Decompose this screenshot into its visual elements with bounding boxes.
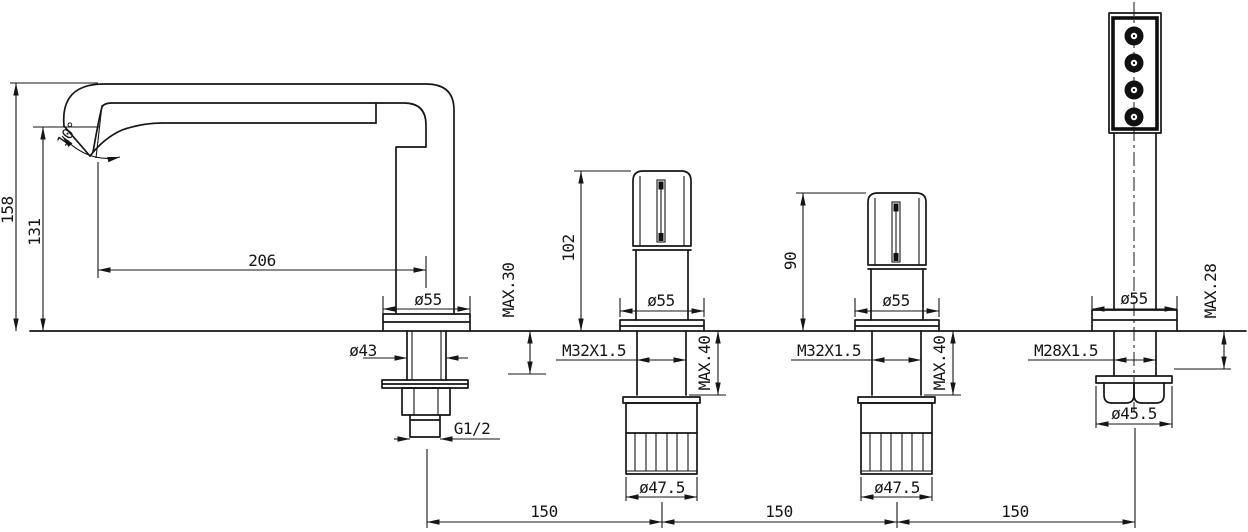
spout-dimensions: 158 131 10° 206 ø55 ø43 MAX.30 G1/2 [0, 83, 546, 439]
dim-spout-outlet-thread: G1/2 [454, 419, 491, 438]
dim-h2-deck-max: MAX.40 [930, 336, 949, 391]
dim-h2-thread: M32X1.5 [797, 341, 861, 360]
dim-spacing-right: 150 [1001, 502, 1028, 521]
drawing-canvas: 158 131 10° 206 ø55 ø43 MAX.30 G1/2 [0, 0, 1248, 532]
dim-spacing-left: 150 [530, 502, 557, 521]
hand-shower-dimensions: ø55 M28X1.5 MAX.28 ø45.5 [1028, 264, 1231, 428]
dim-total-height: 158 [0, 196, 17, 223]
dim-spacing-middle: 150 [765, 502, 792, 521]
dim-spout-base-dia: ø55 [414, 290, 441, 309]
dim-shower-nut-dia: ø45.5 [1111, 404, 1157, 423]
spacing-dimensions: 150 150 150 [427, 428, 1135, 528]
dim-h2-base-dia: ø55 [882, 291, 909, 310]
dim-spout-shank-dia: ø43 [349, 341, 376, 360]
dim-h2-nut-dia: ø47.5 [874, 478, 920, 497]
handle-left-dimensions: 102 ø55 M32X1.5 MAX.40 ø47.5 [556, 171, 726, 501]
handle-right-outline [855, 193, 939, 474]
dim-shower-thread: M28X1.5 [1034, 341, 1098, 360]
faucet-technical-drawing: 158 131 10° 206 ø55 ø43 MAX.30 G1/2 [0, 0, 1248, 532]
dim-shower-deck-max: MAX.28 [1201, 264, 1220, 319]
dim-spout-deck-max: MAX.30 [499, 263, 518, 318]
dim-h1-thread: M32X1.5 [562, 341, 626, 360]
dim-h1-base-dia: ø55 [647, 291, 674, 310]
handle-right-dimensions: 90 ø55 M32X1.5 MAX.40 ø47.5 [781, 193, 961, 501]
dim-h1-deck-max: MAX.40 [695, 336, 714, 391]
spray-nozzles [1125, 27, 1144, 127]
dim-h1-height: 102 [559, 234, 578, 261]
dim-spout-height: 131 [25, 218, 44, 245]
dim-h2-height: 90 [781, 252, 800, 270]
handle-left-outline [620, 171, 704, 474]
hand-shower-outline [1092, 2, 1177, 412]
dim-reach: 206 [248, 251, 275, 270]
dim-shower-base-dia: ø55 [1120, 289, 1147, 308]
dim-h1-nut-dia: ø47.5 [639, 478, 685, 497]
dim-angle: 10° [53, 118, 82, 149]
